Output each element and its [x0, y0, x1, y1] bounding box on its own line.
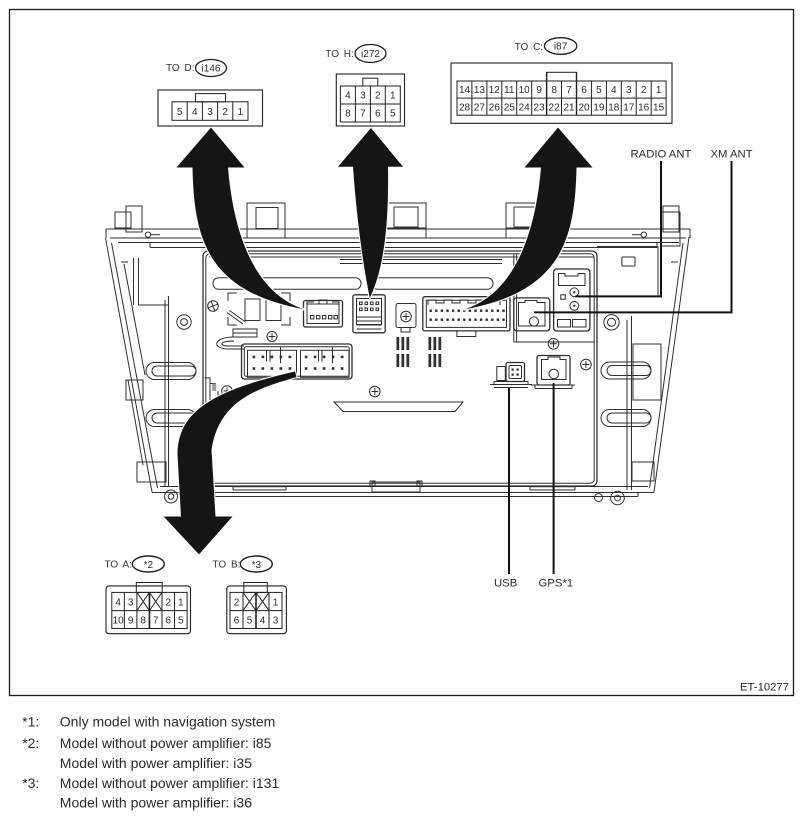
svg-text:ET-10277: ET-10277	[740, 682, 789, 694]
svg-text:RADIO ANT: RADIO ANT	[631, 149, 692, 161]
svg-text:23: 23	[534, 102, 546, 113]
svg-text:TO C:: TO C:	[515, 42, 543, 53]
svg-text:18: 18	[608, 102, 620, 113]
svg-text:i146: i146	[202, 64, 221, 75]
svg-text:i272: i272	[361, 49, 380, 60]
svg-text:1: 1	[390, 91, 396, 102]
svg-text:*2: *2	[144, 560, 154, 571]
svg-text:2: 2	[234, 597, 240, 608]
svg-text:3: 3	[273, 615, 279, 626]
svg-text:3: 3	[128, 597, 134, 608]
svg-text:25: 25	[504, 102, 516, 113]
svg-text:9: 9	[128, 615, 134, 626]
svg-text:8: 8	[551, 85, 557, 96]
svg-text:TO A:: TO A:	[105, 560, 132, 571]
svg-text:4: 4	[611, 85, 617, 96]
svg-text:28: 28	[459, 102, 471, 113]
svg-text:TO H:: TO H:	[325, 49, 353, 60]
svg-text:5: 5	[247, 615, 253, 626]
svg-text:Only model with navigation sys: Only model with navigation system	[60, 714, 276, 730]
svg-text:5: 5	[596, 85, 602, 96]
svg-text:4: 4	[345, 91, 351, 102]
svg-text:4: 4	[192, 107, 198, 118]
svg-text:14: 14	[459, 85, 471, 96]
svg-text:16: 16	[638, 102, 650, 113]
svg-text:27: 27	[474, 102, 486, 113]
svg-text:*2:: *2:	[22, 735, 39, 751]
svg-text:Model without power amplifier:: Model without power amplifier: i85	[60, 735, 272, 751]
svg-text:21: 21	[563, 102, 575, 113]
svg-text:9: 9	[536, 85, 542, 96]
svg-text:8: 8	[345, 109, 351, 120]
svg-text:XM ANT: XM ANT	[711, 149, 753, 161]
svg-text:8: 8	[140, 615, 146, 626]
svg-text:4: 4	[260, 615, 266, 626]
svg-text:10: 10	[519, 85, 531, 96]
svg-text:4: 4	[115, 597, 121, 608]
svg-text:5: 5	[177, 107, 183, 118]
svg-text:20: 20	[578, 102, 590, 113]
svg-text:6: 6	[166, 615, 172, 626]
svg-text:2: 2	[222, 107, 228, 118]
svg-text:GPS*1: GPS*1	[539, 578, 574, 590]
svg-text:22: 22	[549, 102, 561, 113]
svg-text:Model without power amplifier:: Model without power amplifier: i131	[60, 775, 280, 791]
svg-text:3: 3	[360, 91, 366, 102]
svg-text:2: 2	[375, 91, 381, 102]
svg-text:1: 1	[656, 85, 662, 96]
svg-text:3: 3	[207, 107, 213, 118]
svg-text:1: 1	[273, 597, 279, 608]
svg-text:7: 7	[360, 109, 366, 120]
svg-text:Model with power amplifier: i3: Model with power amplifier: i35	[60, 755, 252, 771]
svg-text:7: 7	[566, 85, 572, 96]
svg-text:2: 2	[641, 85, 647, 96]
svg-text:1: 1	[238, 107, 244, 118]
svg-text:13: 13	[474, 85, 486, 96]
svg-text:15: 15	[653, 102, 665, 113]
svg-text:*1:: *1:	[22, 714, 39, 730]
svg-text:19: 19	[593, 102, 605, 113]
svg-text:*3:: *3:	[22, 775, 39, 791]
svg-text:1: 1	[178, 597, 184, 608]
svg-text:5: 5	[390, 109, 396, 120]
svg-text:Model with power amplifier: i3: Model with power amplifier: i36	[60, 794, 252, 810]
svg-text:3: 3	[626, 85, 632, 96]
svg-text:TO B:: TO B:	[213, 560, 241, 571]
svg-text:26: 26	[489, 102, 501, 113]
svg-text:*3: *3	[252, 560, 262, 571]
svg-text:17: 17	[623, 102, 635, 113]
svg-text:USB: USB	[494, 578, 517, 590]
svg-text:11: 11	[504, 85, 515, 96]
svg-text:5: 5	[178, 615, 184, 626]
svg-text:i87: i87	[554, 42, 568, 53]
svg-text:12: 12	[489, 85, 501, 96]
svg-text:TO D:: TO D:	[166, 63, 194, 74]
svg-text:2: 2	[166, 597, 172, 608]
svg-text:10: 10	[113, 615, 125, 626]
svg-text:6: 6	[234, 615, 240, 626]
svg-text:6: 6	[581, 85, 587, 96]
svg-text:24: 24	[519, 102, 531, 113]
svg-text:7: 7	[153, 615, 159, 626]
svg-text:6: 6	[375, 109, 381, 120]
